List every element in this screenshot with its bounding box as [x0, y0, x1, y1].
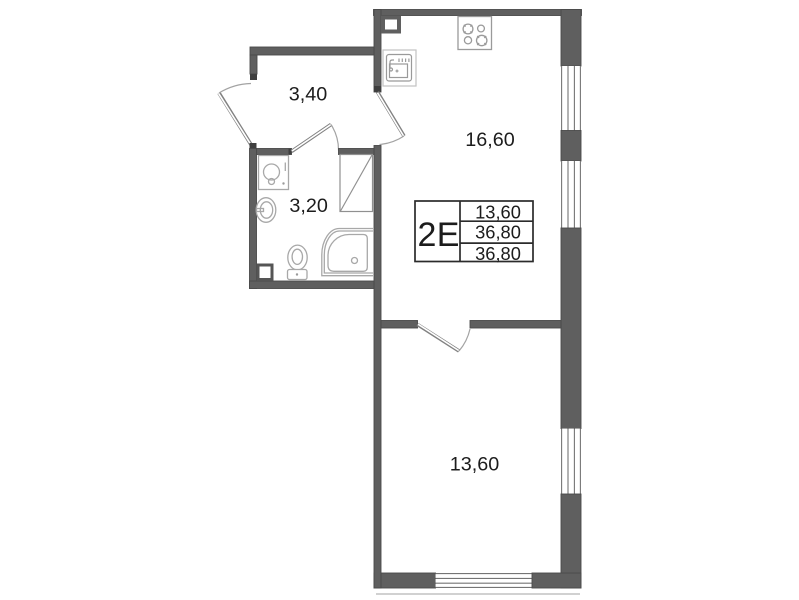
- svg-text:36,80: 36,80: [475, 222, 521, 243]
- svg-text:2E: 2E: [418, 216, 460, 254]
- svg-text:13,60: 13,60: [475, 201, 521, 222]
- svg-text:13,60: 13,60: [450, 454, 500, 476]
- svg-text:16,60: 16,60: [465, 129, 515, 151]
- svg-text:3,20: 3,20: [289, 195, 328, 217]
- svg-text:3,40: 3,40: [289, 84, 328, 106]
- svg-text:36,80: 36,80: [475, 243, 521, 264]
